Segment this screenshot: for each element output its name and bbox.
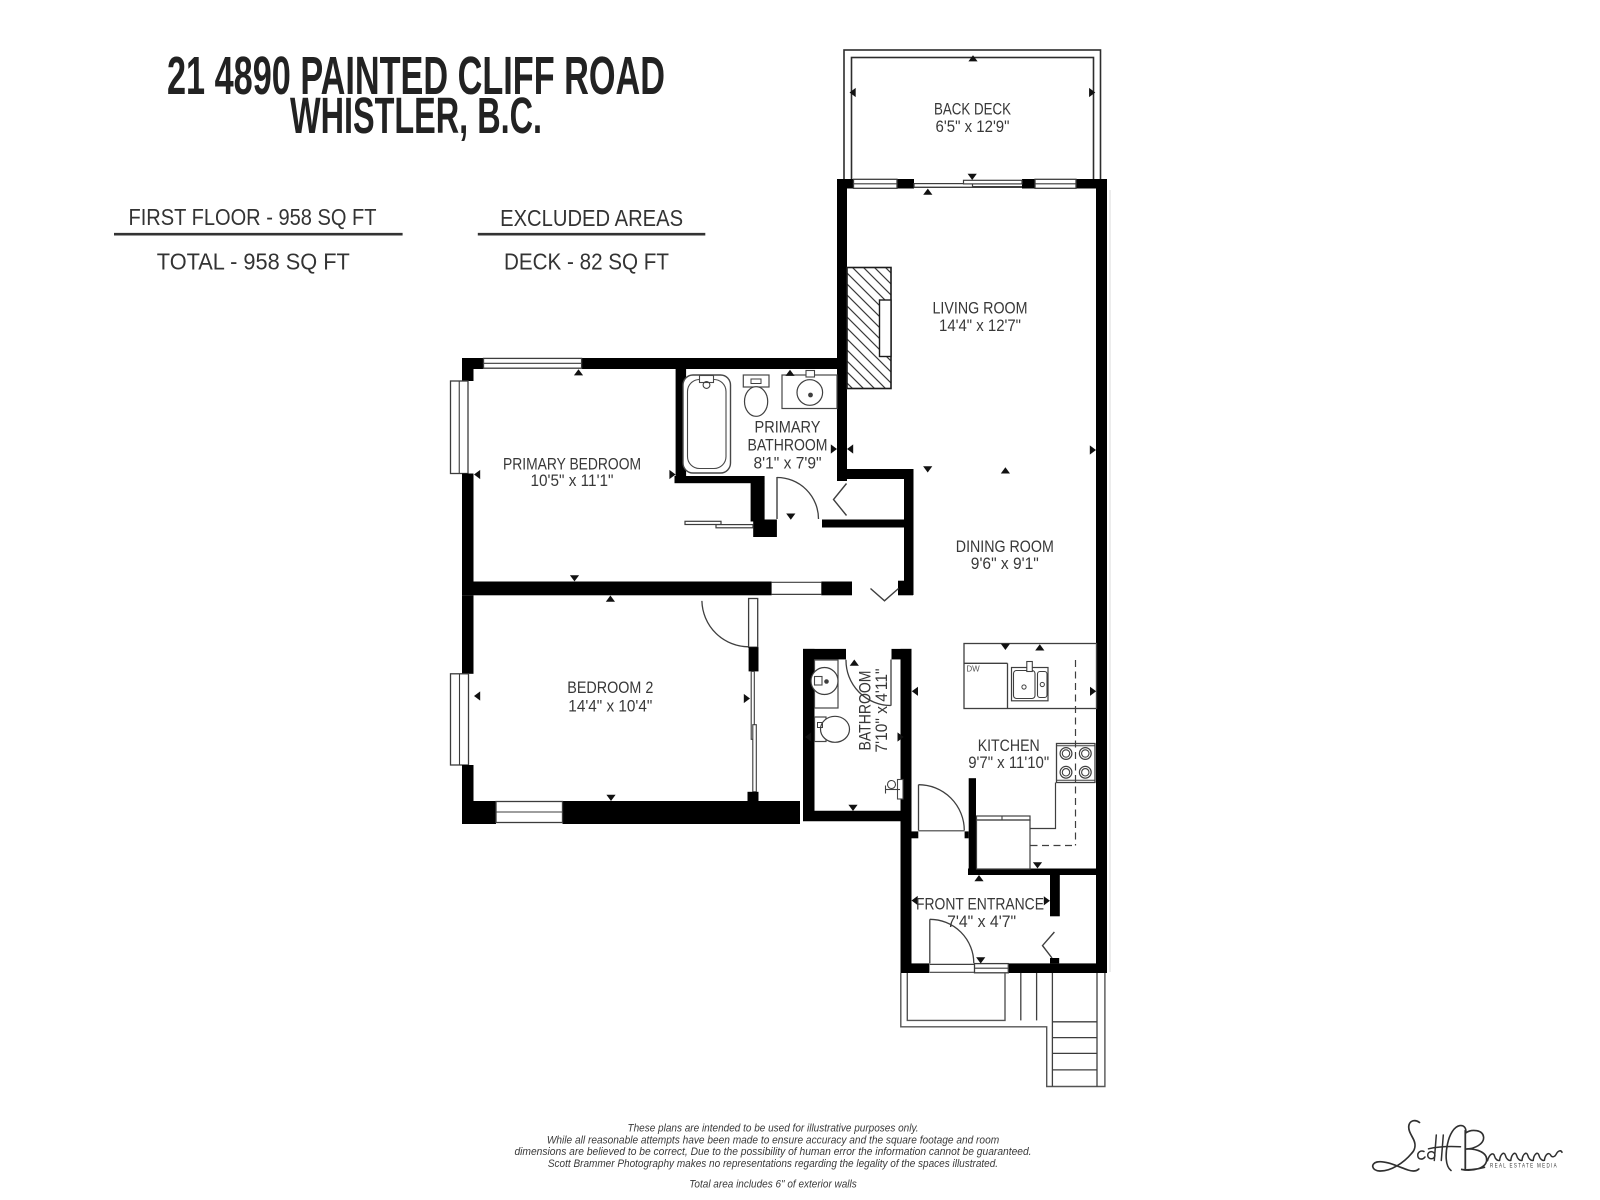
svg-text:8'1" x 7'9": 8'1" x 7'9" bbox=[754, 454, 822, 472]
svg-text:While all reasonable attempts: While all reasonable attempts have been … bbox=[547, 1134, 999, 1146]
svg-text:EXCLUDED AREAS: EXCLUDED AREAS bbox=[500, 205, 683, 231]
svg-text:DINING ROOM: DINING ROOM bbox=[956, 538, 1054, 556]
svg-text:10'5" x 11'1": 10'5" x 11'1" bbox=[531, 472, 614, 490]
svg-text:DW: DW bbox=[966, 665, 980, 674]
svg-text:PRIMARY BEDROOM: PRIMARY BEDROOM bbox=[503, 455, 641, 473]
svg-text:LIVING ROOM: LIVING ROOM bbox=[933, 299, 1028, 317]
svg-text:WHISTLER, B.C.: WHISTLER, B.C. bbox=[290, 87, 542, 144]
svg-text:DECK - 82 SQ FT: DECK - 82 SQ FT bbox=[504, 249, 669, 275]
svg-text:Scott Brammer Photography make: Scott Brammer Photography makes no repre… bbox=[548, 1158, 998, 1170]
svg-text:BATHROOM: BATHROOM bbox=[748, 436, 828, 454]
svg-text:REAL ESTATE MEDIA: REAL ESTATE MEDIA bbox=[1490, 1162, 1558, 1169]
svg-text:BATHROOM: BATHROOM bbox=[856, 671, 874, 751]
svg-text:FIRST FLOOR - 958 SQ FT: FIRST FLOOR - 958 SQ FT bbox=[129, 204, 377, 230]
svg-text:Total area includes 6" of exte: Total area includes 6" of exterior walls bbox=[689, 1179, 857, 1191]
svg-text:9'7" x 11'10": 9'7" x 11'10" bbox=[968, 754, 1049, 772]
svg-text:dimensions are believed to be: dimensions are believed to be correct, D… bbox=[514, 1146, 1031, 1158]
svg-text:PRIMARY: PRIMARY bbox=[755, 419, 821, 437]
svg-text:TOTAL - 958 SQ FT: TOTAL - 958 SQ FT bbox=[157, 249, 350, 275]
svg-text:BACK DECK: BACK DECK bbox=[934, 101, 1011, 119]
svg-text:14'4" x 12'7": 14'4" x 12'7" bbox=[939, 317, 1021, 335]
svg-text:7'4" x 4'7": 7'4" x 4'7" bbox=[947, 913, 1016, 931]
svg-text:7'10" x 4'11": 7'10" x 4'11" bbox=[873, 668, 891, 752]
svg-text:FRONT ENTRANCE: FRONT ENTRANCE bbox=[916, 895, 1044, 913]
svg-text:BEDROOM 2: BEDROOM 2 bbox=[567, 679, 653, 697]
svg-text:9'6" x 9'1": 9'6" x 9'1" bbox=[971, 555, 1039, 573]
svg-text:KITCHEN: KITCHEN bbox=[978, 737, 1040, 755]
svg-text:6'5" x 12'9": 6'5" x 12'9" bbox=[936, 118, 1010, 136]
svg-text:These plans are intended to be: These plans are intended to be used for … bbox=[628, 1122, 919, 1134]
svg-text:14'4" x 10'4": 14'4" x 10'4" bbox=[568, 698, 652, 716]
